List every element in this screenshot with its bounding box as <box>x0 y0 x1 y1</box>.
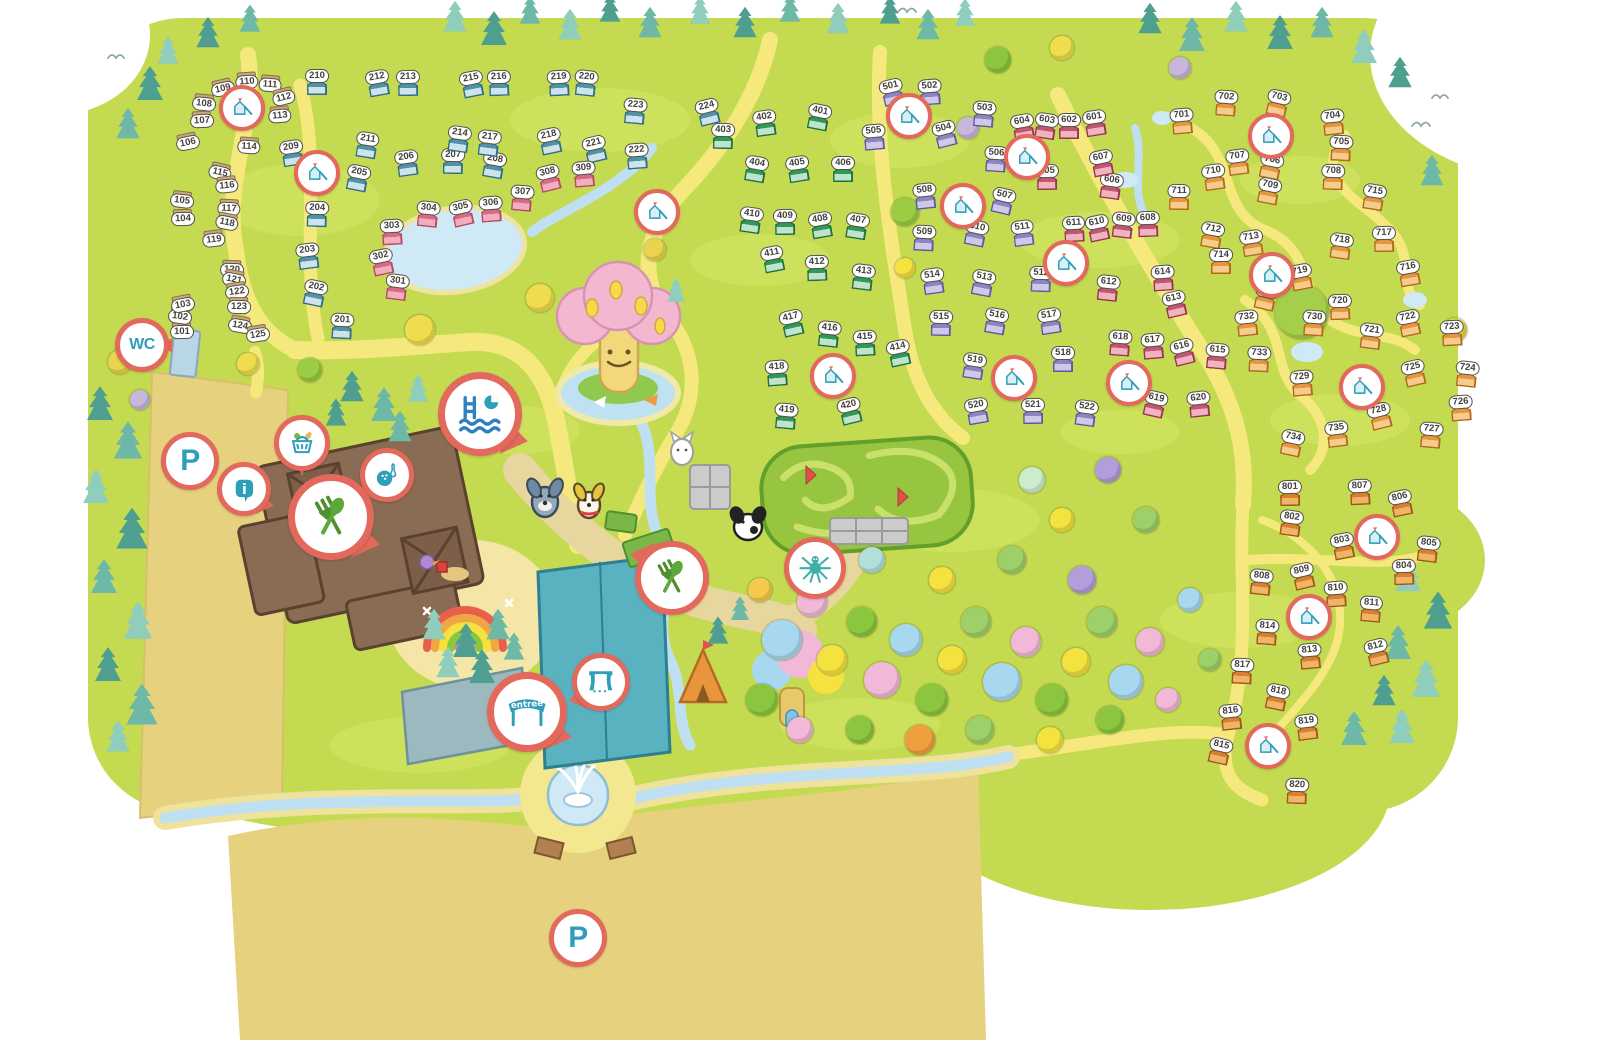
restaurant-lake-icon[interactable] <box>635 541 709 615</box>
playground-icon[interactable] <box>1249 252 1295 298</box>
parking-south-icon[interactable]: P <box>549 909 607 967</box>
svg-text:i: i <box>242 482 247 498</box>
parking-west-icon[interactable]: P <box>161 432 219 490</box>
playground-icon[interactable] <box>991 355 1037 401</box>
spider-icon[interactable] <box>784 537 846 599</box>
parking-west-label: P <box>180 444 200 478</box>
playground-icon[interactable] <box>1339 364 1385 410</box>
playground-icon[interactable] <box>810 353 856 399</box>
bowling-icon[interactable] <box>360 448 414 502</box>
shop-icon[interactable] <box>274 415 330 471</box>
restaurant-main-icon[interactable] <box>288 474 374 560</box>
entree-icon[interactable]: entree <box>487 672 567 752</box>
parking-south-label: P <box>568 921 588 955</box>
theater-icon[interactable] <box>572 653 630 711</box>
facility-icons-layer: WCPientreeP <box>0 0 1600 1040</box>
playground-icon[interactable] <box>1004 134 1050 180</box>
playground-icon[interactable] <box>294 150 340 196</box>
playground-icon[interactable] <box>940 183 986 229</box>
playground-icon[interactable] <box>1043 240 1089 286</box>
playground-icon[interactable] <box>1286 594 1332 640</box>
playground-icon[interactable] <box>219 85 265 131</box>
playground-icon[interactable] <box>1245 723 1291 769</box>
icon-pointer <box>292 457 311 476</box>
playground-icon[interactable] <box>1106 360 1152 406</box>
wc-label: WC <box>129 336 155 354</box>
playground-icon[interactable] <box>634 189 680 235</box>
playground-icon[interactable] <box>1354 514 1400 560</box>
info-icon[interactable]: i <box>217 462 271 516</box>
playground-icon[interactable] <box>886 93 932 139</box>
wc-icon[interactable]: WC <box>115 318 169 372</box>
pool-icon[interactable] <box>438 372 522 456</box>
park-map: 1011021031041051061071081091101111121131… <box>0 0 1600 1040</box>
icon-pointer <box>154 336 172 354</box>
playground-icon[interactable] <box>1248 113 1294 159</box>
